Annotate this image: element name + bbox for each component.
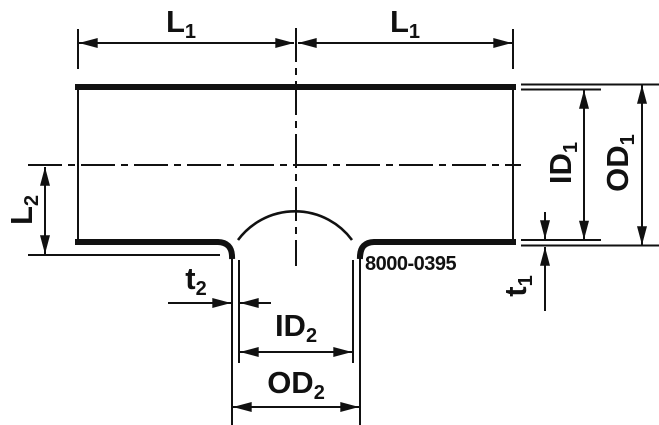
label-l2: L2 [4, 195, 43, 225]
label-od1: OD1 [600, 134, 639, 192]
tee-fitting-dimension-diagram: L1 L1 L2 ID1 OD1 t1 t2 ID2 OD2 8000-0395 [0, 0, 659, 425]
part-number: 8000-0395 [365, 253, 457, 275]
label-id1: ID1 [543, 142, 582, 184]
label-l1-left: L1 [166, 4, 196, 43]
main-pipe-bottom-wall-left [78, 242, 232, 256]
drawing-canvas: L1 L1 L2 ID1 OD1 t1 t2 ID2 OD2 8000-0395 [0, 0, 659, 425]
label-id2: ID2 [275, 308, 317, 347]
label-t2: t2 [185, 261, 206, 300]
label-l1-right: L1 [390, 4, 420, 43]
label-t1: t1 [498, 275, 537, 296]
label-od2: OD2 [267, 365, 325, 404]
